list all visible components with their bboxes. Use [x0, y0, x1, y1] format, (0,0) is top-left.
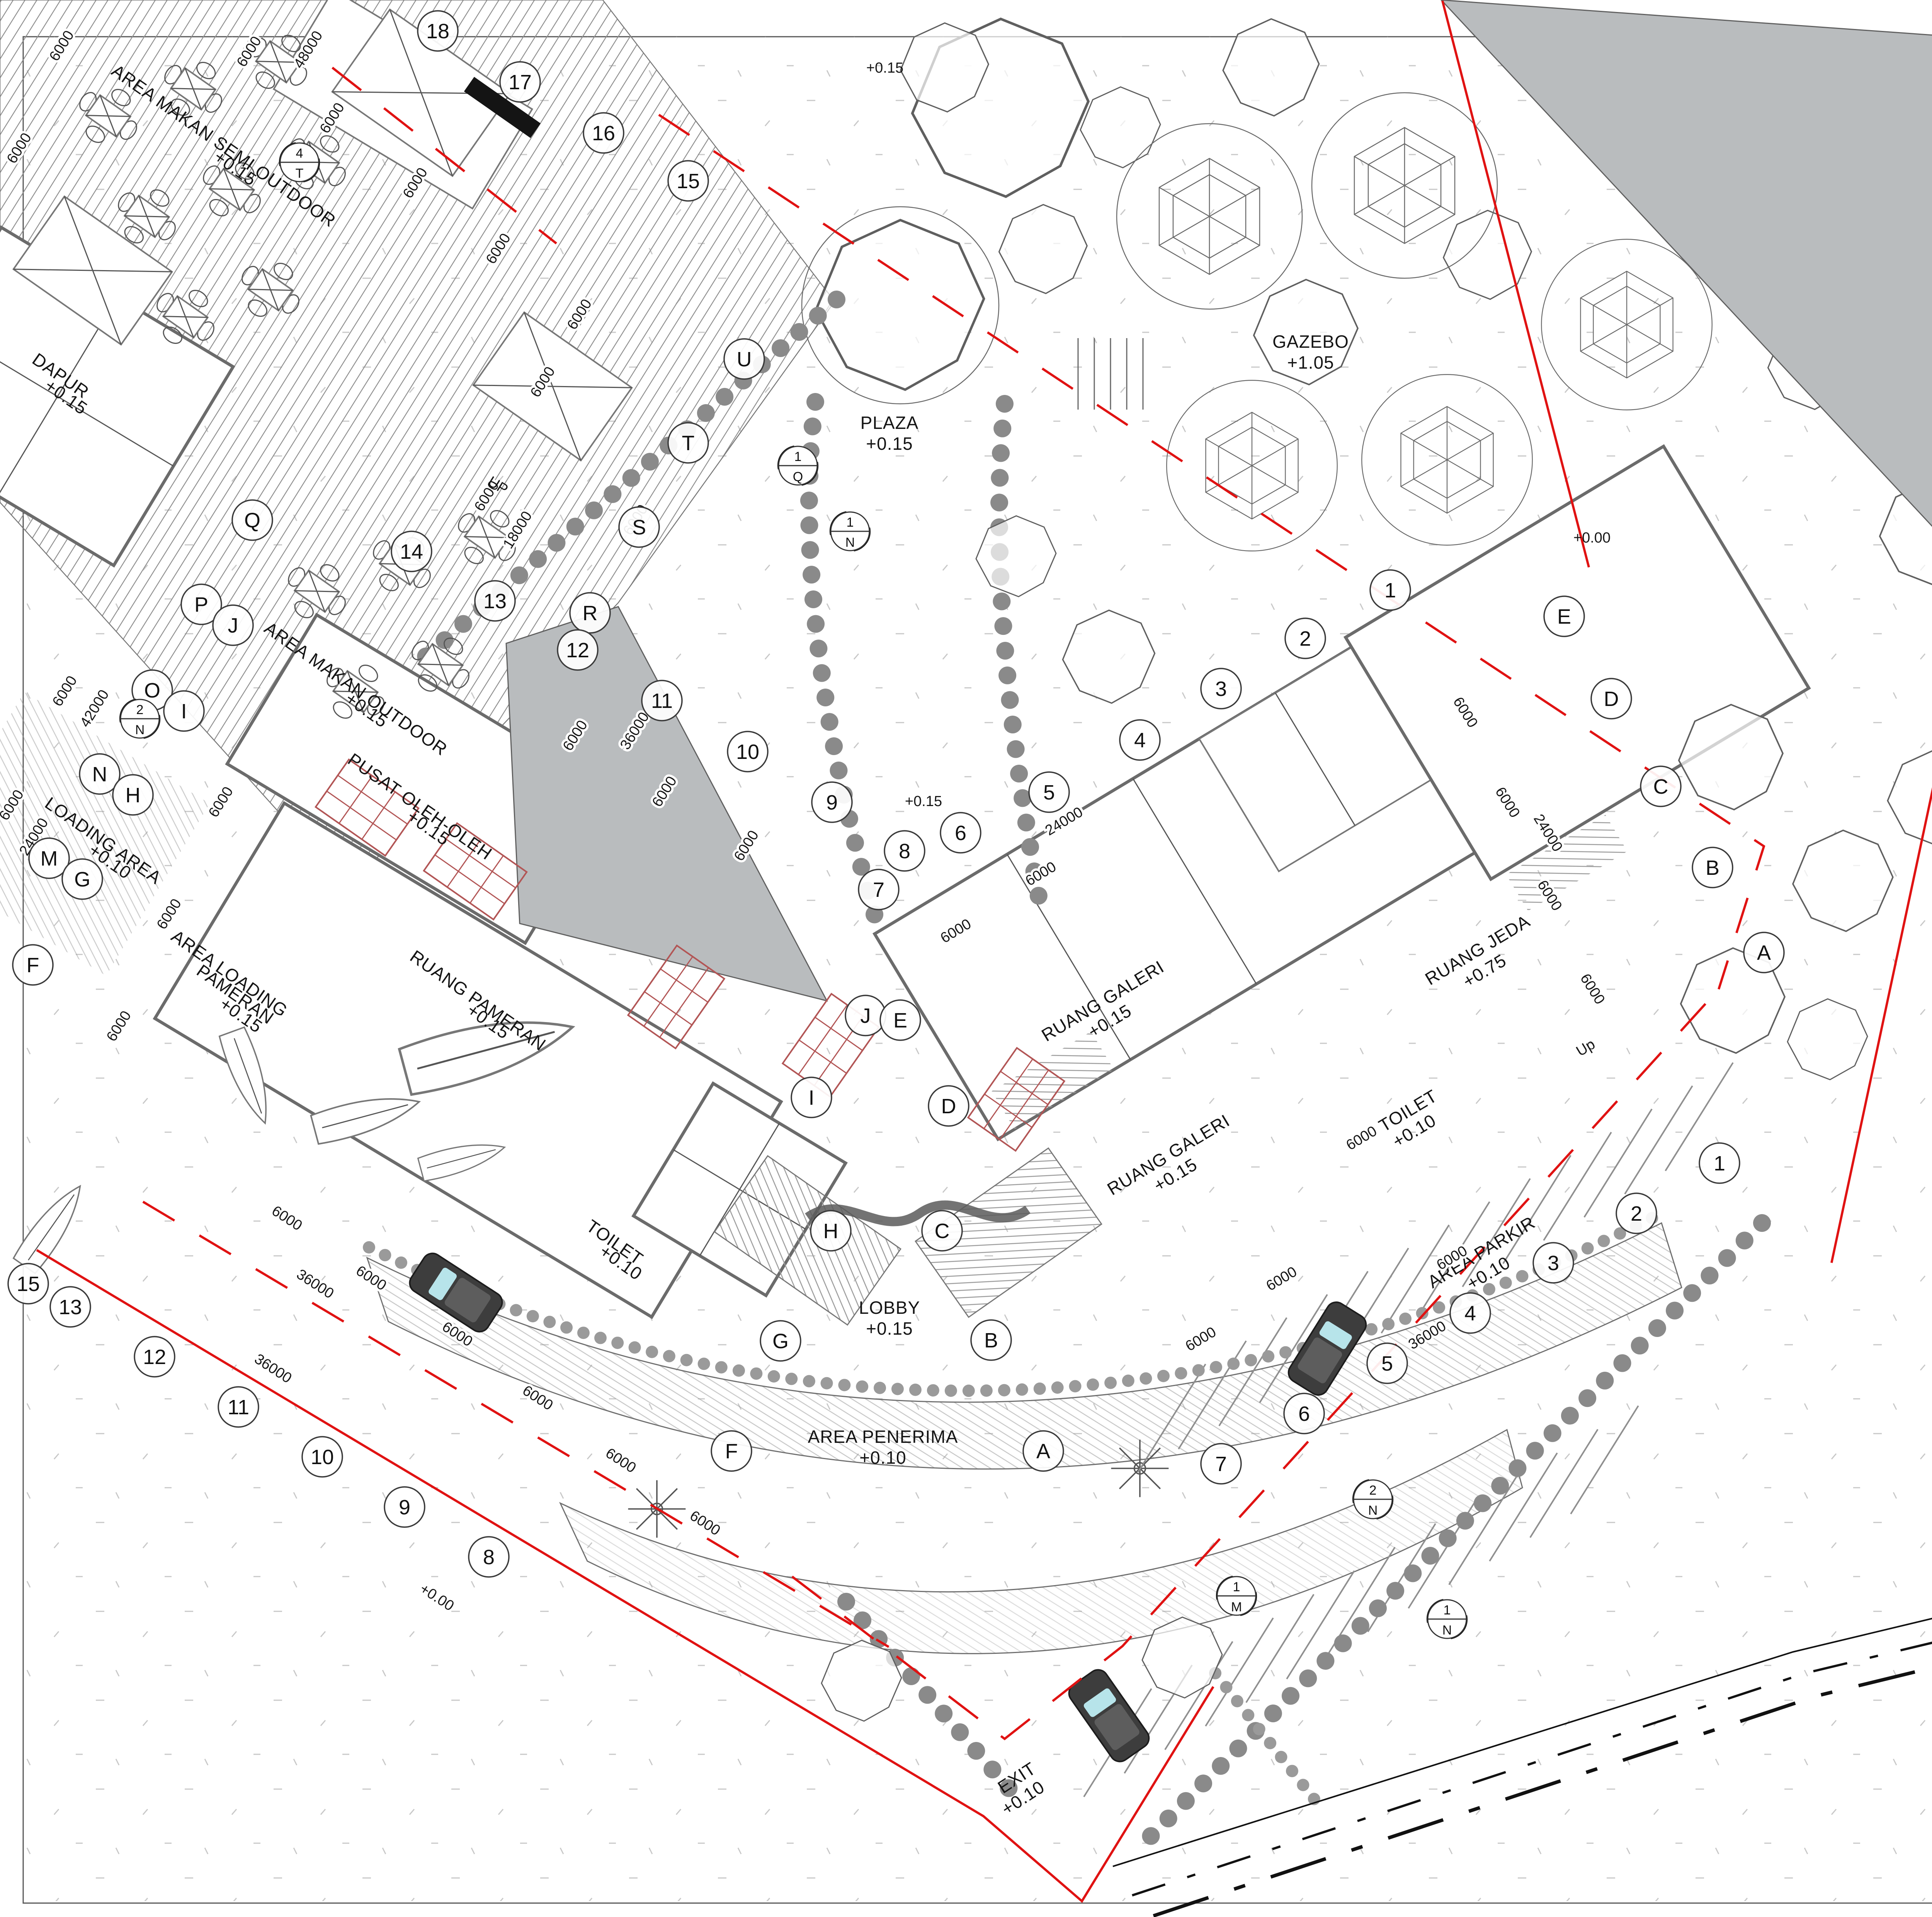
grid-bubble: A [1023, 1431, 1063, 1471]
svg-text:1: 1 [1384, 579, 1396, 602]
grid-bubble: 11 [642, 680, 682, 721]
svg-text:1: 1 [1444, 1603, 1451, 1618]
svg-text:C: C [1653, 775, 1668, 798]
grid-bubble: C [922, 1211, 962, 1251]
area-label: +1.05 [1287, 352, 1334, 373]
grid-bubble: I [791, 1077, 832, 1118]
grid-bubble: 15 [8, 1264, 48, 1304]
area-label: LOBBY [859, 1298, 920, 1318]
grid-bubble: 10 [302, 1437, 342, 1477]
grid-bubble: 1 [1370, 570, 1410, 610]
svg-text:+0.15: +0.15 [866, 60, 903, 76]
svg-text:T: T [682, 432, 695, 455]
svg-text:I: I [181, 700, 187, 723]
svg-text:U: U [737, 348, 752, 371]
svg-text:4: 4 [1134, 729, 1146, 752]
grid-bubble: 11 [218, 1387, 259, 1427]
grid-bubble: 8 [469, 1537, 509, 1577]
grid-bubble: 18 [418, 11, 458, 51]
svg-text:+0.15: +0.15 [905, 793, 942, 810]
svg-text:2: 2 [1299, 627, 1311, 650]
grid-bubble: U [724, 339, 764, 379]
grid-bubble: F [13, 945, 53, 985]
svg-text:E: E [893, 1009, 907, 1032]
svg-text:R: R [583, 602, 598, 625]
area-label: AREA PENERIMA [808, 1427, 958, 1447]
grid-bubble: 15 [668, 161, 708, 201]
grid-bubble: R [570, 593, 610, 633]
svg-text:G: G [74, 868, 90, 891]
svg-text:9: 9 [826, 791, 838, 814]
svg-text:16: 16 [592, 122, 615, 145]
grid-bubble: C [1641, 766, 1681, 806]
svg-text:G: G [772, 1330, 789, 1353]
svg-text:1: 1 [1714, 1152, 1725, 1175]
svg-text:7: 7 [1215, 1453, 1227, 1476]
svg-text:N: N [1442, 1623, 1452, 1638]
svg-text:2: 2 [136, 703, 144, 717]
grid-bubble: D [929, 1086, 969, 1126]
svg-text:N: N [135, 723, 145, 737]
svg-text:6: 6 [1298, 1402, 1310, 1425]
grid-bubble: 5 [1367, 1343, 1407, 1383]
svg-text:15: 15 [17, 1272, 40, 1296]
annotation-label: +0.00 [1573, 530, 1611, 546]
svg-text:F: F [725, 1440, 738, 1463]
svg-text:1: 1 [794, 449, 802, 464]
grid-bubble: 8 [884, 831, 925, 871]
area-label: GAZEBO [1272, 332, 1349, 352]
grid-bubble: H [113, 775, 153, 815]
grid-bubble: 14 [391, 531, 432, 572]
grid-bubble: G [760, 1321, 801, 1361]
svg-text:5: 5 [1381, 1352, 1393, 1375]
svg-text:PLAZA: PLAZA [861, 413, 919, 433]
grid-bubble: F [711, 1431, 752, 1471]
svg-text:13: 13 [483, 590, 507, 613]
annotation-label: +0.15 [866, 60, 903, 76]
svg-text:B: B [1706, 856, 1719, 879]
grid-bubble: H [811, 1211, 851, 1251]
grid-bubble: B [971, 1320, 1011, 1360]
svg-text:12: 12 [143, 1345, 166, 1369]
svg-text:E: E [1557, 605, 1571, 628]
svg-text:2: 2 [1369, 1483, 1377, 1498]
area-label: +0.15 [866, 434, 913, 454]
svg-text:+0.15: +0.15 [866, 1318, 913, 1339]
grid-bubble: S [619, 507, 659, 547]
grid-bubble: 6 [1284, 1393, 1324, 1434]
grid-bubble: 10 [728, 731, 768, 772]
svg-text:T: T [296, 166, 304, 181]
annotation-label: +0.15 [905, 793, 942, 810]
svg-text:AREA PENERIMA: AREA PENERIMA [808, 1427, 958, 1447]
svg-text:10: 10 [736, 740, 759, 764]
svg-text:P: P [194, 593, 208, 616]
svg-text:Q: Q [244, 509, 260, 532]
svg-text:1: 1 [847, 515, 854, 530]
svg-text:LOBBY: LOBBY [859, 1298, 920, 1318]
svg-text:C: C [935, 1220, 950, 1243]
svg-text:A: A [1036, 1440, 1050, 1463]
svg-text:18: 18 [426, 20, 449, 43]
svg-text:11: 11 [228, 1396, 249, 1419]
grid-bubble: 17 [500, 62, 540, 102]
svg-text:+0.00: +0.00 [1573, 530, 1611, 546]
grid-bubble: 16 [583, 113, 624, 153]
svg-text:D: D [1604, 687, 1619, 711]
svg-text:1: 1 [1233, 1580, 1240, 1594]
grid-bubble: 2 [1616, 1193, 1656, 1233]
grid-bubble: 4 [1120, 720, 1160, 760]
svg-text:N: N [845, 535, 855, 550]
grid-bubble: A [1744, 932, 1784, 973]
svg-text:H: H [823, 1220, 838, 1243]
area-label: +0.10 [859, 1448, 906, 1468]
svg-text:3: 3 [1548, 1252, 1559, 1275]
grid-bubble: 7 [1201, 1444, 1241, 1484]
svg-text:6: 6 [955, 822, 966, 845]
svg-text:14: 14 [400, 540, 423, 563]
svg-text:2: 2 [1631, 1202, 1642, 1225]
svg-text:9: 9 [399, 1496, 410, 1519]
svg-text:A: A [1757, 941, 1771, 964]
svg-text:J: J [861, 1004, 871, 1027]
grid-bubble: 7 [859, 869, 899, 910]
svg-text:12: 12 [566, 639, 589, 662]
grid-bubble: E [1544, 596, 1584, 636]
svg-text:I: I [808, 1086, 814, 1109]
svg-text:B: B [984, 1329, 998, 1352]
grid-bubble: I [164, 691, 204, 731]
svg-text:8: 8 [483, 1546, 495, 1569]
svg-text:N: N [92, 763, 107, 786]
svg-text:+1.05: +1.05 [1287, 352, 1334, 373]
grid-bubble: D [1591, 679, 1631, 719]
svg-text:11: 11 [651, 689, 673, 713]
grid-bubble: E [880, 1000, 920, 1040]
grid-bubble: J [213, 605, 253, 645]
svg-text:17: 17 [509, 71, 532, 94]
svg-text:5: 5 [1043, 781, 1055, 804]
grid-bubble: 1 [1699, 1143, 1740, 1183]
svg-text:O: O [144, 679, 160, 702]
area-label: +0.15 [866, 1318, 913, 1339]
grid-bubble: 4 [1450, 1293, 1490, 1333]
svg-text:J: J [228, 614, 238, 637]
grid-bubble: J [845, 995, 886, 1036]
svg-text:D: D [941, 1095, 956, 1118]
svg-text:+0.15: +0.15 [866, 434, 913, 454]
grid-bubble: 9 [812, 782, 852, 822]
grid-bubble: 9 [384, 1487, 425, 1527]
svg-text:GAZEBO: GAZEBO [1272, 332, 1349, 352]
svg-text:H: H [126, 784, 141, 807]
svg-text:4: 4 [296, 146, 303, 161]
grid-bubble: G [62, 859, 102, 899]
svg-text:+0.10: +0.10 [859, 1448, 906, 1468]
drawing-sheet: N AREA MAKAN SEMI OUTDOOR+0.15DAPUR+0.15… [0, 0, 1932, 1917]
grid-bubble: 13 [475, 581, 515, 621]
grid-bubble: 3 [1201, 668, 1241, 709]
grid-bubble: Q [232, 500, 272, 540]
grid-bubble: B [1692, 847, 1733, 888]
grid-bubble: 5 [1029, 772, 1069, 812]
svg-text:M: M [41, 847, 58, 870]
grid-bubble: 2 [1285, 618, 1325, 658]
svg-text:8: 8 [899, 840, 910, 863]
svg-text:15: 15 [677, 170, 700, 193]
grid-bubble: 12 [134, 1337, 175, 1377]
svg-text:F: F [27, 954, 39, 977]
svg-text:N: N [1368, 1503, 1378, 1518]
area-label: PLAZA [861, 413, 919, 433]
svg-text:M: M [1231, 1600, 1242, 1614]
svg-text:7: 7 [873, 878, 884, 902]
grid-bubble: 3 [1533, 1243, 1573, 1283]
grid-bubble: 12 [558, 630, 598, 670]
grid-bubble: 13 [50, 1287, 90, 1327]
svg-text:13: 13 [59, 1296, 82, 1319]
grid-bubble: 6 [940, 813, 981, 853]
svg-text:Q: Q [793, 469, 803, 484]
svg-text:4: 4 [1464, 1302, 1476, 1325]
grid-bubble: T [668, 423, 708, 463]
svg-text:3: 3 [1215, 677, 1227, 701]
site-plan-drawing: N AREA MAKAN SEMI OUTDOOR+0.15DAPUR+0.15… [0, 0, 1932, 1917]
svg-text:S: S [632, 516, 646, 539]
svg-text:10: 10 [311, 1446, 334, 1469]
